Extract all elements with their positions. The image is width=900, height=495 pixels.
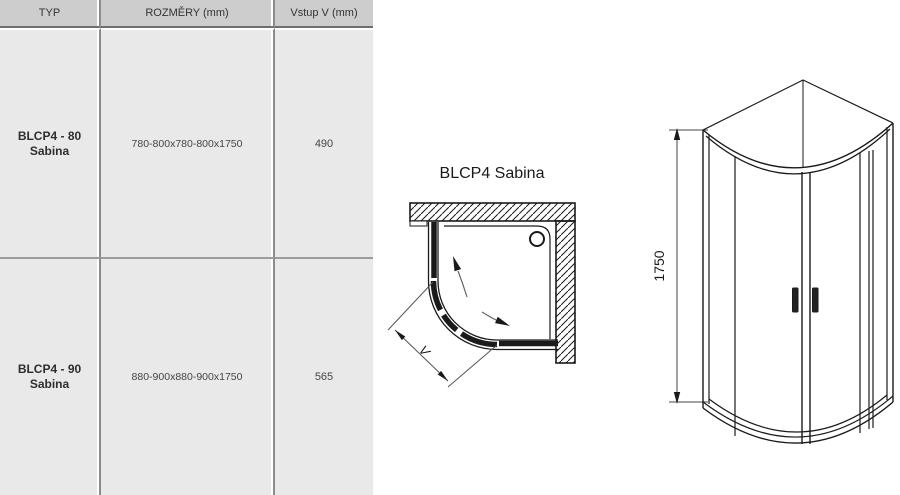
top-view-diagram: BLCP4 Sabina V bbox=[386, 158, 598, 420]
table-row-type-cell: BLCP4 - 90 Sabina bbox=[0, 259, 101, 495]
center-door-edges bbox=[802, 172, 810, 444]
wall-profile-lip bbox=[410, 221, 427, 226]
product-series: Sabina bbox=[30, 377, 69, 392]
entry-width-value: 565 bbox=[315, 371, 333, 383]
table-row-dimensions-cell: 880-900x880-900x1750 bbox=[101, 259, 275, 495]
wall-right bbox=[556, 221, 575, 363]
column-header-label: ROZMĚRY (mm) bbox=[145, 7, 228, 19]
door-arrow-up-tail bbox=[458, 271, 467, 297]
column-header-label: Vstup V (mm) bbox=[290, 7, 357, 19]
product-type: BLCP4 - 80 bbox=[18, 129, 81, 144]
entry-dim-label: V bbox=[416, 342, 434, 359]
top-face-back-edges bbox=[703, 80, 893, 130]
table-row-entry-cell: 490 bbox=[275, 28, 373, 259]
product-dimensions: 780-800x780-800x1750 bbox=[132, 138, 243, 150]
table-row-entry-cell: 565 bbox=[275, 259, 373, 495]
column-header-label: TYP bbox=[39, 7, 60, 19]
entry-width-value: 490 bbox=[315, 138, 333, 150]
bottom-rail-inner bbox=[703, 396, 893, 437]
product-type: BLCP4 - 90 bbox=[18, 362, 81, 377]
wall-top bbox=[410, 203, 575, 221]
door-handle-left bbox=[793, 288, 799, 312]
top-rail-outer bbox=[703, 123, 893, 168]
product-series: Sabina bbox=[30, 144, 69, 159]
table-row-type-cell: BLCP4 - 80 Sabina bbox=[0, 28, 101, 259]
top-view-title: BLCP4 Sabina bbox=[440, 165, 545, 182]
door-arrow-right-tail bbox=[482, 312, 497, 321]
door-arrow-up-icon bbox=[453, 256, 461, 271]
door-arrow-right-icon bbox=[495, 317, 510, 326]
rail-outer bbox=[429, 222, 559, 350]
entry-dim-extension-lines bbox=[388, 282, 497, 387]
column-header-rozmery: ROZMĚRY (mm) bbox=[101, 0, 275, 28]
spec-table: TYP ROZMĚRY (mm) Vstup V (mm) BLCP4 - 80… bbox=[0, 0, 373, 495]
column-header-typ: TYP bbox=[0, 0, 101, 28]
right-inner-frame bbox=[869, 150, 873, 429]
height-dim-ticks bbox=[669, 130, 708, 402]
product-dimensions: 880-900x880-900x1750 bbox=[132, 371, 243, 383]
height-dim-label: 1750 bbox=[651, 250, 667, 281]
door-handle-right bbox=[813, 288, 819, 312]
table-row-dimensions-cell: 780-800x780-800x1750 bbox=[101, 28, 275, 259]
front-view-diagram: 1750 bbox=[650, 55, 900, 495]
column-header-vstup: Vstup V (mm) bbox=[275, 0, 373, 28]
product-sheet: TYP ROZMĚRY (mm) Vstup V (mm) BLCP4 - 80… bbox=[0, 0, 900, 495]
drain-icon bbox=[530, 232, 544, 246]
